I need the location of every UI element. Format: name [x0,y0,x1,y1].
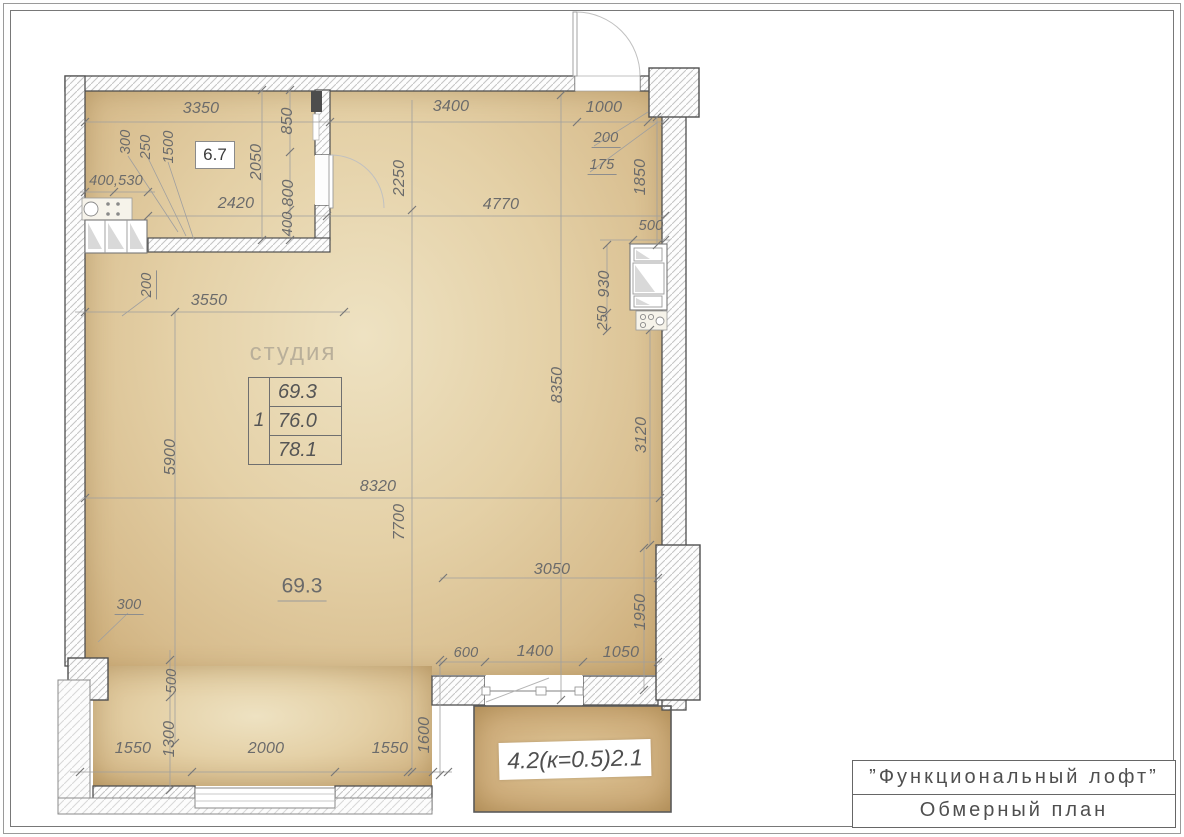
title-block: ”Функциональный лофт” Обмерный план [852,760,1176,828]
stove-icon [636,311,667,330]
dim-3550: 3550 [191,292,227,310]
dim-200-left: 200 [139,271,157,300]
dim-850: 850 [279,107,297,134]
dim-400-530: 400,530 [89,173,143,189]
dim-1050: 1050 [603,644,639,662]
floor-area-label: 69.3 [278,575,327,602]
area-total: 76.0 [270,407,341,436]
dim-3400: 3400 [433,98,469,116]
kitchen-counter [85,220,147,253]
dim-930: 930 [596,270,614,297]
flat-number: 1 [249,378,270,464]
exterior-walls [65,76,686,810]
room-6-7-area-label: 6.7 [195,141,235,169]
dim-1600: 1600 [416,717,434,753]
dim-800: 800 [280,179,298,206]
dim-500-top-right: 500 [639,218,664,234]
dim-3050: 3050 [534,561,570,579]
area-living: 69.3 [270,378,341,407]
dim-250-right: 250 [595,306,611,331]
dim-1400: 1400 [517,643,553,661]
entrance-door [573,12,640,91]
dim-2420: 2420 [218,195,254,213]
dim-1850: 1850 [632,159,650,195]
dim-3120: 3120 [633,417,651,453]
dim-1950: 1950 [632,594,650,630]
dim-300-top-left: 300 [118,130,134,155]
dim-2250: 2250 [391,160,409,196]
area-with-balcony: 78.1 [270,436,341,464]
dim-175: 175 [588,157,617,175]
shaft [311,91,322,112]
dim-1000: 1000 [586,99,622,117]
dim-1550-b: 1550 [372,740,408,758]
dim-1500: 1500 [161,130,177,163]
balcony-door-window [482,676,583,705]
dim-8320: 8320 [360,478,396,496]
kitchen-sink-icon [82,198,132,220]
dim-2000: 2000 [248,740,284,758]
balcony-area-label: 4.2(к=0.5)2.1 [499,739,652,780]
bathtub [630,244,667,310]
dim-600: 600 [454,645,479,661]
window [195,788,335,808]
dim-1300: 1300 [161,721,179,757]
leader-lines [98,112,658,642]
dim-2050: 2050 [248,144,266,180]
dim-7700: 7700 [391,504,409,540]
area-table: 1 69.3 76.0 78.1 [248,377,342,465]
dim-250-top-left: 250 [138,135,154,160]
plan-linework [0,0,1184,837]
shaft-slot [313,114,319,140]
project-name: ”Функциональный лофт” [853,761,1175,795]
floor-plan-sheet: 3350 3400 1000 200 175 1850 2250 850 205… [0,0,1184,837]
dim-5900: 5900 [162,439,180,475]
dim-1550-a: 1550 [115,740,151,758]
dim-3350: 3350 [183,100,219,118]
dim-4770: 4770 [483,196,519,214]
dim-200-top-right: 200 [592,130,621,148]
dim-400-partition: 400 [280,212,296,237]
interior-door [315,155,384,208]
dim-300-bottom-left: 300 [115,597,144,615]
drawing-name: Обмерный план [853,795,1175,828]
dim-8350: 8350 [549,367,567,403]
room-name-label: студия [250,339,337,367]
dim-500-bottom-left: 500 [164,669,180,694]
